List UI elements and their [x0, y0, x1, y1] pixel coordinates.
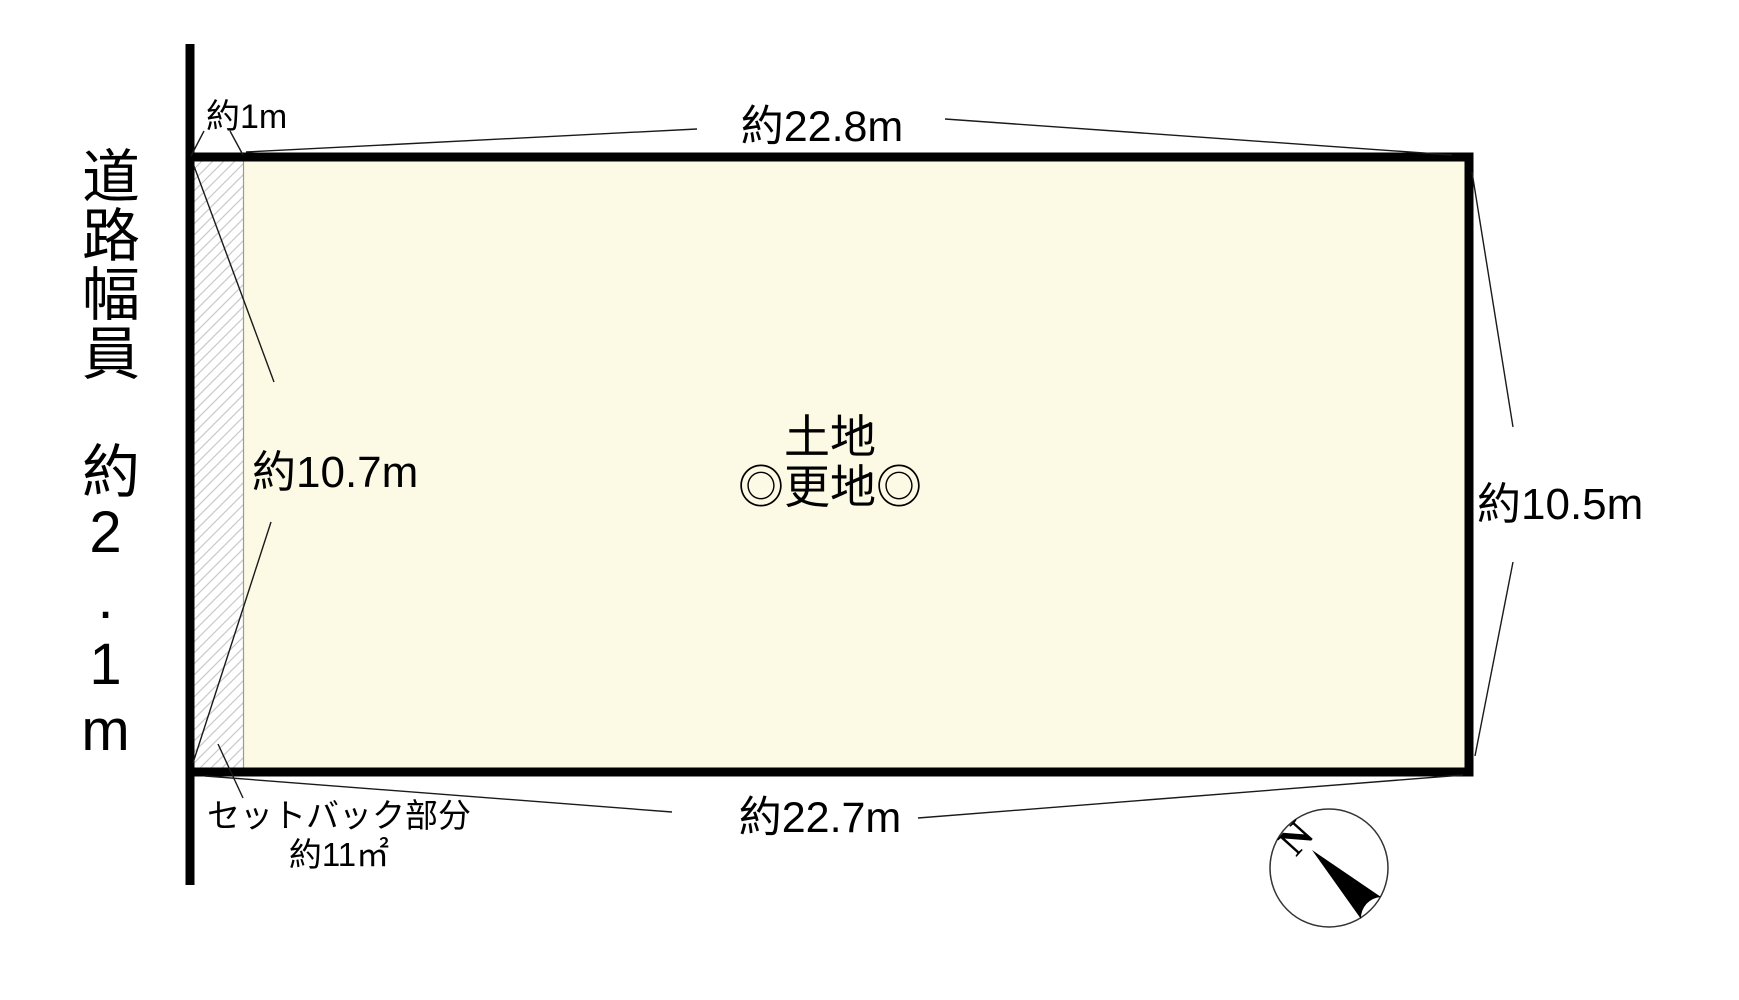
leader-right-dim-bottom [1475, 562, 1513, 756]
plot-center-label: 土地 ◎更地◎ [679, 412, 981, 512]
road-width-label: 道路幅員 約2.1m [76, 146, 134, 764]
setback-note: セットバック部分 約11㎡ [188, 797, 490, 875]
leader-bottom-dim-right [918, 775, 1463, 818]
dimension-right: 約10.5m [1477, 468, 1643, 532]
leader-top-dim-left [246, 129, 697, 152]
dimension-setback-offset: 約1m [206, 89, 287, 138]
plot-label-line2: ◎更地◎ [679, 462, 981, 512]
setback-note-line1: セットバック部分 [188, 797, 490, 836]
leader-right-dim-top [1472, 172, 1513, 427]
compass: N [1269, 809, 1388, 927]
plot-label-line1: 土地 [679, 412, 981, 462]
dimension-bottom: 約22.7m [718, 783, 922, 845]
setback-strip-hatch [195, 162, 244, 768]
dimension-top: 約22.8m [722, 92, 922, 154]
setback-note-line2: 約11㎡ [188, 836, 490, 875]
leader-top-dim-right [945, 119, 1452, 155]
land-plot-diagram: N 道路幅員 約2.1m 約22.8m 約1m 約10.7m 約10.5m 約2… [0, 0, 1739, 1000]
dimension-left-inner: 約10.7m [252, 436, 418, 500]
